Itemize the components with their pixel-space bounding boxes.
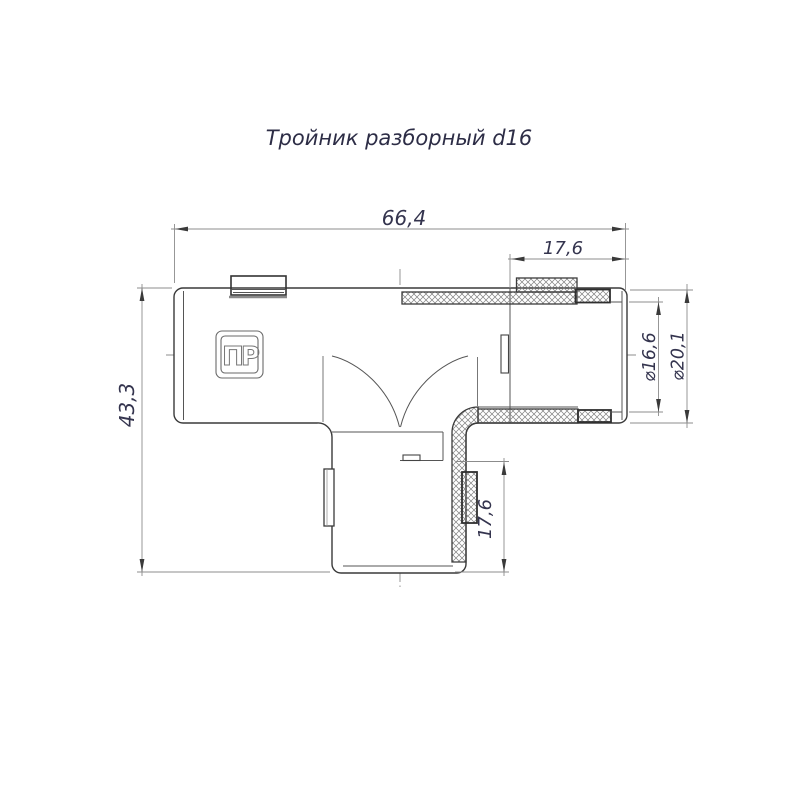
arrowhead [685, 410, 690, 423]
arrowhead [685, 290, 690, 303]
arrowhead [175, 227, 188, 232]
arrowhead [656, 302, 661, 315]
arrowhead [140, 288, 145, 301]
dim-top-nut: 17,6 [508, 238, 629, 262]
arrowhead [140, 559, 145, 572]
dim-value: 17,6 [475, 499, 496, 539]
technical-drawing: Тройник разборный d16 [0, 0, 800, 800]
leg-tab-outer [324, 469, 334, 526]
arrowhead [502, 559, 507, 572]
arm-slot-window [501, 335, 509, 373]
leg-side-tab [324, 469, 334, 526]
drawing-canvas: Тройник разборный d16 [0, 0, 800, 800]
arrowhead [656, 399, 661, 412]
dim-value: 66,4 [382, 206, 427, 230]
logo-text: ПР [222, 342, 259, 372]
leg-step-tab [403, 455, 420, 461]
seal-ring-bottom-port [578, 410, 611, 422]
dim-value: 17,6 [543, 238, 583, 259]
arrowhead [612, 227, 625, 232]
drawing-title: Тройник разборный d16 [266, 126, 533, 150]
dim-value: 43,3 [115, 383, 139, 428]
insert-bottom-strip [478, 409, 578, 423]
arrowhead [512, 257, 525, 262]
insert-top-strip [402, 292, 577, 304]
dim-value: ⌀20,1 [669, 331, 689, 381]
dim-value: ⌀16,6 [640, 332, 660, 382]
seal-ring-raised [517, 278, 578, 292]
seal-ring-top-port [576, 290, 611, 303]
arrowhead [502, 462, 507, 475]
arrowhead [612, 257, 625, 262]
dim-inner-diameter: ⌀16,6 [629, 297, 663, 416]
